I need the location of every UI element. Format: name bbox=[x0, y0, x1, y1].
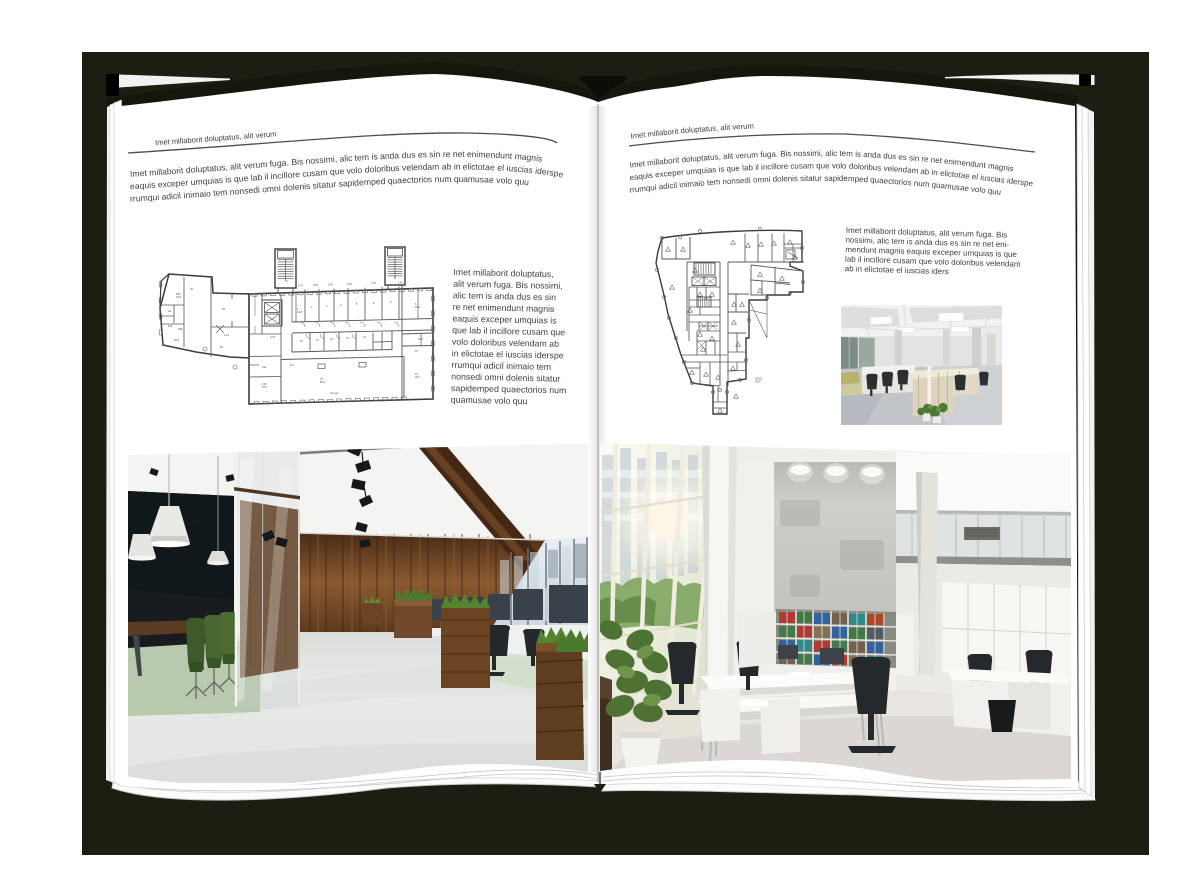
svg-text:31.7: 31.7 bbox=[262, 385, 268, 389]
svg-text:30.7: 30.7 bbox=[415, 375, 421, 379]
svg-text:2.75: 2.75 bbox=[298, 285, 303, 288]
svg-text:Imet millaborit doluptatus,: Imet millaborit doluptatus, bbox=[453, 267, 553, 279]
svg-text:1.75: 1.75 bbox=[371, 282, 376, 285]
svg-text:Б: Б bbox=[394, 276, 396, 280]
svg-text:1-й: 1-й bbox=[290, 363, 294, 367]
svg-text:1.45: 1.45 bbox=[398, 281, 403, 284]
svg-text:re net enimendunt magnis: re net enimendunt magnis bbox=[453, 302, 556, 314]
svg-text:1.11: 1.11 bbox=[224, 333, 229, 337]
svg-text:5.54: 5.54 bbox=[418, 337, 424, 341]
svg-text:rrumqui adicil inimaio tem: rrumqui adicil inimaio tem bbox=[451, 360, 551, 372]
svg-text:12.6: 12.6 bbox=[176, 295, 182, 299]
svg-text:27.6: 27.6 bbox=[270, 335, 276, 339]
svg-text:quamusae volo quu: quamusae volo quu bbox=[451, 395, 528, 407]
svg-text:20б: 20б bbox=[178, 327, 183, 331]
svg-text:19.2: 19.2 bbox=[415, 305, 421, 309]
svg-text:2.85: 2.85 bbox=[313, 284, 318, 287]
svg-text:13.8: 13.8 bbox=[297, 310, 303, 314]
svg-text:40.2: 40.2 bbox=[174, 338, 180, 342]
svg-text:A: A bbox=[286, 279, 288, 283]
svg-text:21a: 21a bbox=[262, 365, 267, 369]
svg-text:86.3: 86.3 bbox=[320, 380, 326, 384]
svg-text:2.90: 2.90 bbox=[328, 284, 333, 287]
svg-text:10а: 10а bbox=[168, 324, 173, 328]
svg-text:3.00: 3.00 bbox=[347, 283, 352, 286]
svg-text:2-й зал: 2-й зал bbox=[330, 391, 339, 395]
